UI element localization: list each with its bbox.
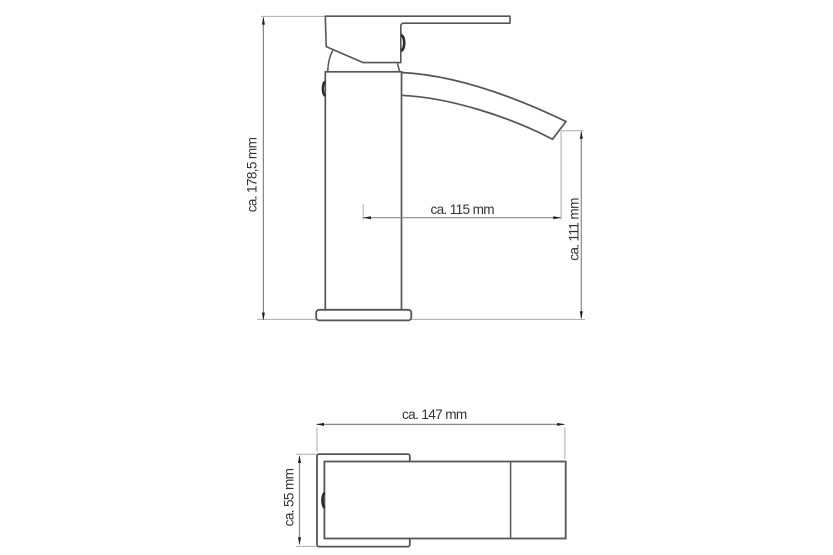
svg-text:ca. 55 mm: ca. 55 mm <box>282 468 297 526</box>
svg-text:ca. 115 mm: ca. 115 mm <box>430 202 494 217</box>
svg-text:ca. 147 mm: ca. 147 mm <box>402 407 467 422</box>
svg-text:ca. 111 mm: ca. 111 mm <box>567 198 582 261</box>
svg-text:ca. 178,5 mm: ca. 178,5 mm <box>245 137 260 212</box>
